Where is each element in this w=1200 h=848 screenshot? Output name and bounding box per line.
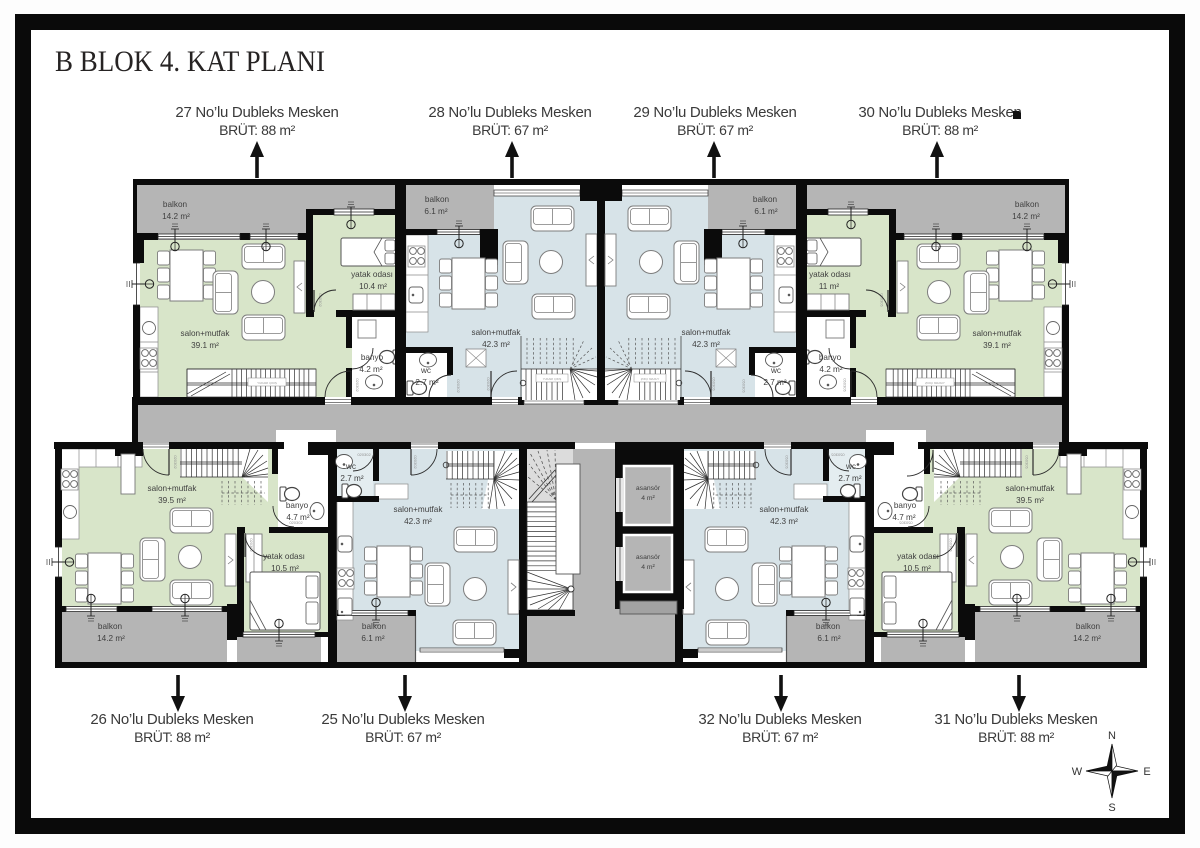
svg-text:banyo: banyo (894, 501, 917, 510)
svg-text:BRÜT: 88 m²: BRÜT: 88 m² (219, 121, 295, 138)
svg-text:YUKARI ÇIKIŞ: YUKARI ÇIKIŞ (257, 381, 277, 385)
svg-text:4.7 m²: 4.7 m² (892, 513, 915, 522)
svg-text:14.2 m²: 14.2 m² (162, 212, 190, 221)
svg-text:balkon: balkon (1015, 200, 1040, 209)
svg-text:2.7 m²: 2.7 m² (838, 474, 861, 483)
svg-text:salon+mutfak: salon+mutfak (1006, 484, 1056, 493)
svg-text:42.3 m²: 42.3 m² (770, 517, 798, 526)
svg-text:28 No’lu Dubleks Mesken: 28 No’lu Dubleks Mesken (428, 104, 591, 121)
svg-text:29 No’lu Dubleks Mesken: 29 No’lu Dubleks Mesken (633, 104, 796, 121)
svg-text:BRÜT: 88 m²: BRÜT: 88 m² (978, 728, 1054, 745)
svg-text:020302: 020302 (357, 452, 371, 457)
svg-text:B BLOK 4. KAT PLANI: B BLOK 4. KAT PLANI (55, 45, 325, 78)
svg-text:26 No’lu Dubleks Mesken: 26 No’lu Dubleks Mesken (90, 711, 253, 728)
svg-text:14.2 m²: 14.2 m² (97, 634, 125, 643)
svg-text:42.3 m²: 42.3 m² (404, 517, 432, 526)
svg-text:salon+mutfak: salon+mutfak (682, 328, 732, 337)
svg-text:11 m²: 11 m² (819, 282, 840, 291)
svg-text:balkon: balkon (98, 622, 123, 631)
svg-text:6.1 m²: 6.1 m² (754, 207, 777, 216)
svg-text:wc: wc (845, 462, 856, 471)
svg-text:14.2 m²: 14.2 m² (1012, 212, 1040, 221)
svg-text:4.2 m²: 4.2 m² (819, 365, 842, 374)
svg-text:balkon: balkon (163, 200, 188, 209)
svg-text:BRÜT: 88 m²: BRÜT: 88 m² (134, 728, 210, 745)
svg-text:salon+mutfak: salon+mutfak (973, 329, 1023, 338)
svg-text:banyo: banyo (361, 353, 384, 362)
svg-text:020302: 020302 (249, 538, 254, 552)
svg-text:balkon: balkon (1076, 622, 1101, 631)
svg-text:30 No’lu Dubleks Mesken: 30 No’lu Dubleks Mesken (858, 104, 1021, 121)
svg-text:wc: wc (420, 366, 431, 375)
svg-text:4.7 m²: 4.7 m² (286, 513, 309, 522)
svg-text:4 m²: 4 m² (641, 495, 655, 502)
svg-text:asansör: asansör (636, 554, 661, 561)
svg-text:yatak odası: yatak odası (263, 552, 305, 561)
svg-text:salon+mutfak: salon+mutfak (760, 505, 810, 514)
svg-text:2.7 m²: 2.7 m² (415, 378, 438, 387)
svg-text:banyo: banyo (286, 501, 309, 510)
svg-text:asansör: asansör (636, 485, 661, 492)
svg-text:39.1 m²: 39.1 m² (191, 341, 219, 350)
svg-text:020302: 020302 (486, 377, 491, 391)
svg-text:42.3 m²: 42.3 m² (482, 340, 510, 349)
svg-text:BRÜT: 67 m²: BRÜT: 67 m² (365, 728, 441, 745)
svg-text:2.7 m²: 2.7 m² (340, 474, 363, 483)
svg-text:2.7 m²: 2.7 m² (763, 378, 786, 387)
svg-text:39.1 m²: 39.1 m² (983, 341, 1011, 350)
svg-text:salon+mutfak: salon+mutfak (181, 329, 231, 338)
svg-text:4.2 m²: 4.2 m² (359, 365, 382, 374)
svg-text:10.5 m²: 10.5 m² (903, 564, 931, 573)
svg-text:balkon: balkon (753, 195, 778, 204)
svg-text:W: W (1072, 766, 1083, 778)
svg-text:BRÜT: 67 m²: BRÜT: 67 m² (742, 728, 818, 745)
svg-text:balkon: balkon (816, 622, 841, 631)
svg-text:yatak odası: yatak odası (351, 270, 393, 279)
svg-text:39.5 m²: 39.5 m² (1016, 496, 1044, 505)
svg-text:salon+mutfak: salon+mutfak (394, 505, 444, 514)
svg-text:YUKARI ÇIKIŞ: YUKARI ÇIKIŞ (543, 377, 562, 381)
svg-text:wc: wc (770, 366, 781, 375)
svg-text:10.5 m²: 10.5 m² (271, 564, 299, 573)
svg-text:BRÜT: 88 m²: BRÜT: 88 m² (902, 121, 978, 138)
svg-text:balkon: balkon (425, 195, 450, 204)
svg-text:31 No’lu Dubleks Mesken: 31 No’lu Dubleks Mesken (934, 711, 1097, 728)
svg-text:salon+mutfak: salon+mutfak (148, 484, 198, 493)
svg-text:BRÜT: 67 m²: BRÜT: 67 m² (677, 121, 753, 138)
svg-text:25 No’lu Dubleks Mesken: 25 No’lu Dubleks Mesken (321, 711, 484, 728)
svg-text:10.4 m²: 10.4 m² (359, 282, 387, 291)
svg-text:6.1 m²: 6.1 m² (424, 207, 447, 216)
svg-text:4 m²: 4 m² (641, 564, 655, 571)
svg-text:6.1 m²: 6.1 m² (817, 634, 840, 643)
svg-text:020302: 020302 (173, 455, 178, 469)
svg-text:020302: 020302 (355, 378, 360, 392)
svg-text:32 No’lu Dubleks Mesken: 32 No’lu Dubleks Mesken (698, 711, 861, 728)
svg-text:salon+mutfak: salon+mutfak (472, 328, 522, 337)
svg-text:E: E (1143, 766, 1150, 778)
svg-text:020302: 020302 (456, 379, 461, 393)
svg-text:39.5 m²: 39.5 m² (158, 496, 186, 505)
svg-text:020302: 020302 (413, 455, 418, 469)
svg-text:14.2 m²: 14.2 m² (1073, 634, 1101, 643)
svg-text:banyo: banyo (819, 353, 842, 362)
svg-text:020302: 020302 (318, 293, 323, 307)
svg-text:S: S (1108, 802, 1115, 814)
svg-text:6.1 m²: 6.1 m² (361, 634, 384, 643)
svg-text:BRÜT: 67 m²: BRÜT: 67 m² (472, 121, 548, 138)
svg-text:yatak odası: yatak odası (809, 270, 851, 279)
svg-text:yatak odası: yatak odası (897, 552, 939, 561)
svg-text:balkon: balkon (362, 622, 387, 631)
svg-text:wc: wc (345, 462, 356, 471)
svg-text:42.3 m²: 42.3 m² (692, 340, 720, 349)
svg-text:N: N (1108, 730, 1116, 742)
svg-text:27 No’lu Dubleks Mesken: 27 No’lu Dubleks Mesken (175, 104, 338, 121)
